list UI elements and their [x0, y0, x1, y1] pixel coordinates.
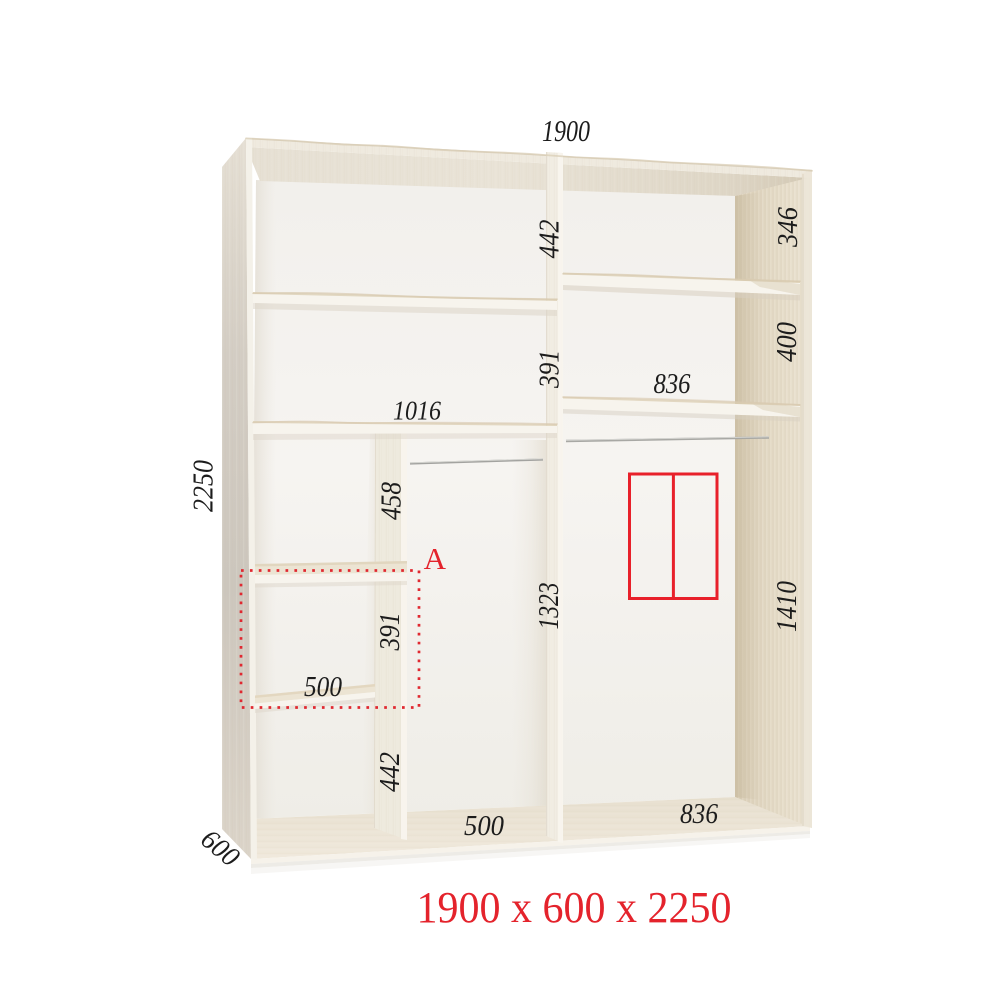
svg-text:400: 400: [772, 322, 803, 362]
svg-text:458: 458: [377, 482, 408, 520]
svg-text:442: 442: [535, 220, 566, 259]
svg-text:500: 500: [464, 811, 504, 842]
svg-text:1016: 1016: [393, 396, 441, 426]
svg-text:500: 500: [304, 672, 342, 703]
svg-text:442: 442: [375, 752, 406, 792]
svg-text:836: 836: [654, 369, 691, 400]
svg-text:391: 391: [375, 613, 406, 652]
svg-text:1323: 1323: [534, 583, 565, 630]
svg-text:1410: 1410: [772, 581, 803, 632]
svg-text:1900 x 600 x 2250: 1900 x 600 x 2250: [417, 883, 732, 932]
svg-text:2250: 2250: [189, 460, 220, 512]
svg-text:836: 836: [680, 799, 718, 830]
svg-text:346: 346: [773, 207, 804, 248]
svg-text:391: 391: [535, 350, 566, 389]
svg-text:A: A: [424, 541, 447, 576]
svg-text:1900: 1900: [542, 113, 590, 148]
